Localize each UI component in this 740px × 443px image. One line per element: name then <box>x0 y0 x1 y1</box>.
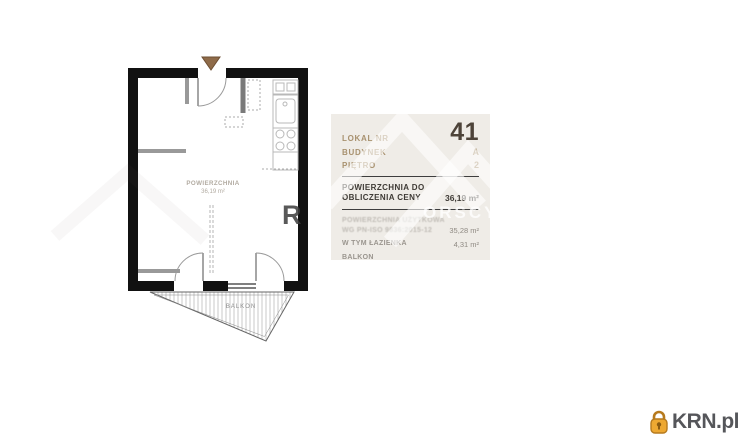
kitchen-fixtures <box>273 80 298 170</box>
kitchen-dashed-outlines <box>225 80 297 169</box>
room-area: 36,19 m² <box>201 189 225 195</box>
entrance-door <box>198 78 226 106</box>
krn-logo: KRN.pl <box>648 408 739 435</box>
entrance-arrow-icon <box>202 57 220 70</box>
interior-walls <box>138 78 187 271</box>
padlock-icon <box>648 408 670 435</box>
listing-card: POWIERZCHNIA 36,19 m² BALKON LOKAL NR 41… <box>0 0 740 443</box>
balcony-door-left <box>175 253 203 281</box>
floor-plan: POWIERZCHNIA 36,19 m² BALKON <box>0 0 740 443</box>
sink-icon <box>276 99 295 123</box>
dashed-partition <box>210 205 213 275</box>
logo-text: KRN.pl <box>672 410 739 434</box>
balcony-window <box>228 284 256 288</box>
balcony-label: BALKON <box>226 304 256 310</box>
balcony: BALKON <box>150 292 294 341</box>
balcony-door-right <box>256 253 284 281</box>
room-label: POWIERZCHNIA <box>186 180 239 187</box>
